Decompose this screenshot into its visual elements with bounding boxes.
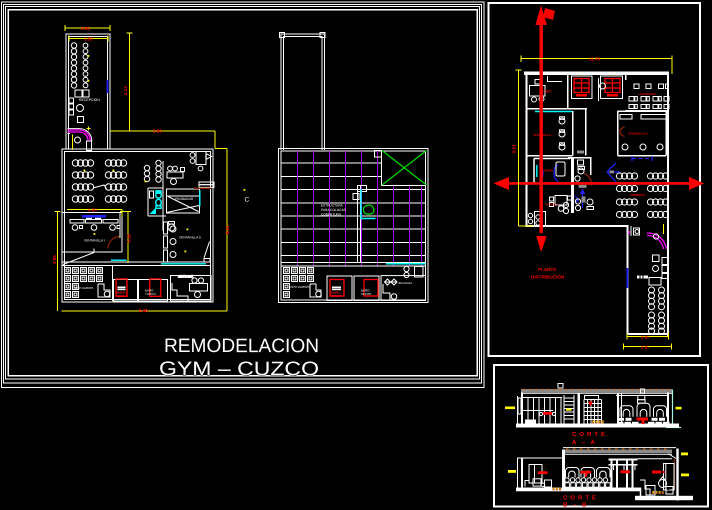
svg-text:ESTRUCTURA: ESTRUCTURA	[321, 204, 344, 208]
svg-text:CORTE: CORTE	[563, 496, 599, 502]
svg-text:C: C	[244, 197, 249, 204]
svg-text:VESTID. 2: VESTID. 2	[545, 203, 559, 207]
svg-text:2.00: 2.00	[641, 335, 650, 340]
svg-text:GYM – CUZCO: GYM – CUZCO	[159, 358, 319, 380]
svg-text:RECEPCION: RECEPCION	[79, 98, 100, 102]
svg-text:JEFATURA: JEFATURA	[178, 275, 193, 279]
svg-text:4.14: 4.14	[123, 86, 128, 95]
svg-text:CORTE: CORTE	[572, 432, 608, 438]
svg-text:SAUNA: SAUNA	[331, 294, 343, 298]
svg-text:B – B: B – B	[563, 503, 588, 509]
svg-text:VENTANILLA II: VENTANILLA II	[179, 236, 201, 240]
svg-text:LAVANDERIA: LAVANDERIA	[638, 92, 656, 96]
svg-text:3.50: 3.50	[84, 37, 93, 42]
svg-text:DISTRIBUCION: DISTRIBUCION	[531, 275, 565, 280]
svg-text:REMODELACION: REMODELACION	[164, 335, 319, 357]
svg-text:PLANTA: PLANTA	[538, 267, 557, 272]
svg-text:TURCO: TURCO	[145, 292, 156, 296]
svg-text:2.35: 2.35	[641, 345, 650, 350]
svg-text:A – A: A – A	[572, 440, 597, 446]
svg-text:PARA COLOCAR: PARA COLOCAR	[321, 208, 347, 212]
svg-text:VENTANILLA I: VENTANILLA I	[84, 239, 105, 243]
svg-text:VENTANILLA 1: VENTANILLA 1	[533, 133, 553, 137]
svg-text:8.01: 8.01	[225, 225, 230, 234]
svg-text:3.95: 3.95	[52, 255, 57, 264]
svg-text:COBERTURA: COBERTURA	[321, 213, 342, 217]
svg-text:JEFATURA: JEFATURA	[398, 281, 412, 285]
svg-text:COCINA: COCINA	[542, 169, 553, 173]
svg-text:VENTANILLA 4: VENTANILLA 4	[628, 132, 648, 136]
svg-text:3.50: 3.50	[153, 129, 162, 134]
svg-text:VESTUARIOS: VESTUARIOS	[74, 286, 93, 290]
svg-text:VAPOR: VAPOR	[361, 292, 372, 296]
svg-text:4.20: 4.20	[88, 208, 97, 213]
svg-text:8.01: 8.01	[512, 144, 517, 153]
svg-text:VESTUARIOS: VESTUARIOS	[290, 285, 309, 289]
svg-text:11.70: 11.70	[589, 57, 601, 62]
svg-text:PROBADOR: PROBADOR	[175, 197, 194, 201]
svg-text:SAUNA: SAUNA	[117, 294, 129, 298]
svg-text:8.48: 8.48	[139, 308, 148, 313]
svg-text:COMEDOR: COMEDOR	[630, 193, 645, 197]
svg-text:3.85: 3.85	[81, 26, 90, 31]
svg-text:3.18: 3.18	[127, 234, 132, 243]
